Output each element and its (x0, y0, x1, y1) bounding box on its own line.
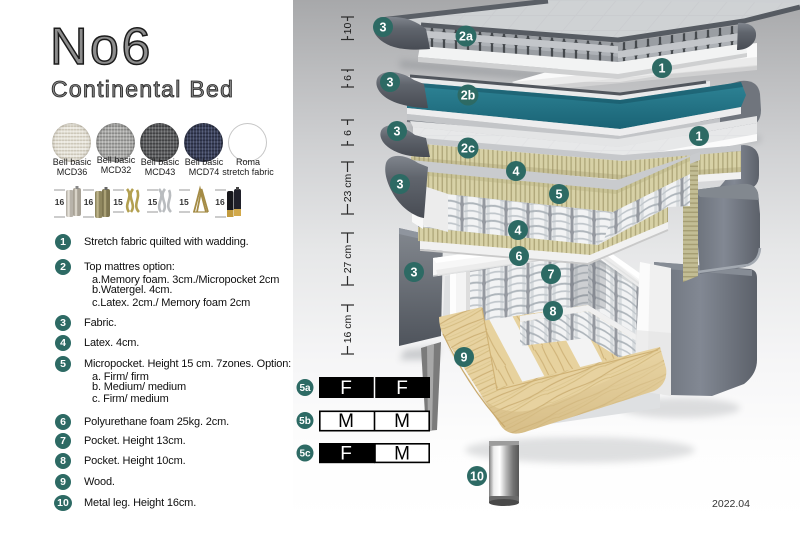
svg-text:23 cm: 23 cm (342, 173, 354, 202)
svg-text:5c: 5c (299, 449, 311, 460)
svg-text:3: 3 (394, 125, 401, 139)
svg-text:3: 3 (380, 21, 387, 35)
svg-text:3: 3 (397, 178, 404, 192)
svg-text:2a: 2a (459, 30, 474, 44)
svg-text:M: M (394, 444, 410, 465)
svg-text:M: M (394, 411, 410, 432)
svg-text:5b: 5b (299, 416, 311, 427)
svg-text:F: F (396, 378, 408, 399)
svg-text:27 cm: 27 cm (342, 244, 354, 273)
svg-text:F: F (340, 444, 352, 465)
svg-text:4: 4 (513, 165, 520, 179)
svg-text:2b: 2b (461, 89, 476, 103)
svg-text:10: 10 (470, 470, 484, 484)
svg-text:8: 8 (550, 305, 557, 319)
svg-text:9: 9 (461, 351, 468, 365)
svg-text:6: 6 (516, 250, 523, 264)
svg-text:6: 6 (342, 75, 354, 81)
svg-text:3: 3 (387, 76, 394, 90)
svg-text:F: F (340, 378, 352, 399)
svg-text:3: 3 (411, 266, 418, 280)
svg-text:2022.04: 2022.04 (712, 498, 750, 510)
svg-text:5a: 5a (299, 383, 311, 394)
svg-text:M: M (338, 411, 354, 432)
svg-text:1: 1 (659, 62, 666, 76)
svg-text:5: 5 (556, 188, 563, 202)
svg-text:7: 7 (548, 268, 555, 282)
svg-text:2c: 2c (461, 142, 475, 156)
svg-text:16 cm: 16 cm (342, 314, 354, 343)
svg-text:6: 6 (342, 130, 354, 136)
svg-text:4: 4 (515, 224, 522, 238)
svg-text:10: 10 (342, 23, 354, 35)
svg-text:1: 1 (696, 130, 703, 144)
